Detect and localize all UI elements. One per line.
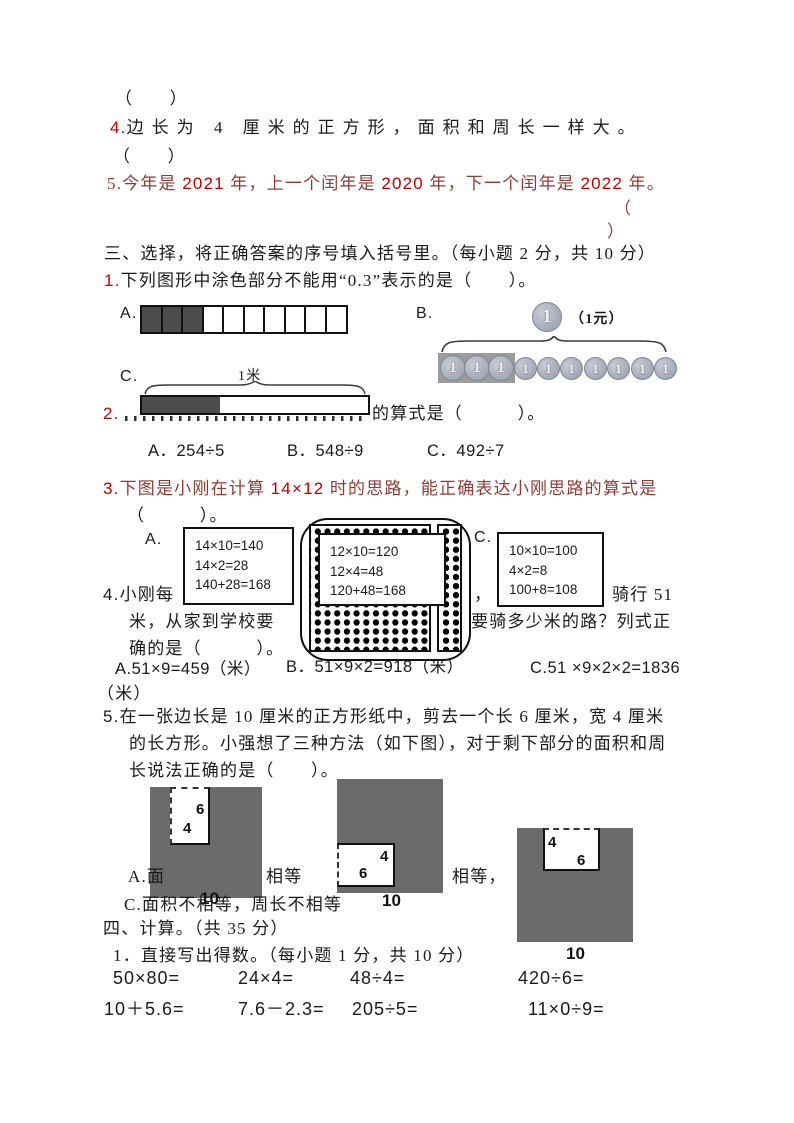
judge-q5-part: 年。 (623, 174, 665, 193)
q5-option-c-line: C.面积不相等，周长不相等 (124, 894, 342, 915)
equation-line: 12×4=48 (330, 562, 444, 582)
one-yuan-coin-large: 1 (532, 302, 562, 332)
q1-option-c-label: C. (120, 366, 138, 387)
one-yuan-coin: 1 (440, 355, 466, 381)
judge-q5-part: 年，上一个闰年是 (225, 174, 382, 193)
q3-expression: 14×12 (271, 479, 325, 498)
q4-line2-left: 米，从家到学校要 (129, 611, 275, 632)
meter-bar-shaded (142, 397, 220, 413)
worksheet-page: （ ） 4.边长为 4 厘米的正方形，面积和周长一样大。 （ ） 5.今年是 2… (0, 0, 794, 1123)
calc-item: 10＋5.6= (104, 999, 185, 1020)
q5-line1: 5.在一张边长是 10 厘米的正方形纸中，剪去一个长 6 厘米，宽 4 厘米 (103, 706, 664, 727)
calc-item: 7.6－2.3= (238, 999, 325, 1020)
year-number: 2021 (182, 174, 225, 193)
question-number: 1. (104, 271, 121, 290)
q5-option-fragment: 相等 (266, 866, 302, 887)
q3-option-a-label: A. (145, 529, 163, 550)
one-yuan-coin: 1 (488, 355, 514, 381)
question-number: 2. (103, 404, 120, 423)
calc-item: 420÷6= (518, 968, 584, 989)
calc-item: 24×4= (238, 968, 294, 989)
one-yuan-coin: 1 (464, 355, 490, 381)
q2-visible-text: 的算式是（ ）。 (372, 403, 546, 424)
bar-caption: 1米 (238, 366, 261, 387)
judge-q5-part: 5.今年是 (107, 174, 182, 193)
question-number: 3. (103, 479, 120, 498)
calc-item: 11×0÷9= (528, 999, 605, 1020)
section4-sub-heading: 1．直接写出得数。（每小题 1 分，共 10 分） (113, 945, 475, 966)
question-number: 4. (110, 118, 127, 137)
fraction-grid (140, 305, 348, 334)
q3-text: 下图是小刚在计算 (120, 479, 271, 498)
answer-paren-open: （ (614, 198, 632, 219)
year-number: 2020 (381, 174, 424, 193)
answer-blank: （ ） (113, 146, 186, 167)
q5-option-a-fragment: A.面 (128, 866, 165, 887)
q2-option-a: A．254÷5 (148, 441, 225, 462)
dim-label-6: 6 (196, 801, 204, 818)
coin-digit: 1 (639, 361, 646, 377)
equation-line: 100+8=108 (509, 580, 602, 600)
judge-q4-text: 边长为 4 厘米的正方形，面积和周长一样大。 (127, 118, 643, 137)
q3-stem: 3.下图是小刚在计算 14×12 时的思路，能正确表达小刚思路的算式是 (103, 478, 657, 499)
obscured-text-remnant (125, 416, 368, 421)
one-yuan-coin: 1 (560, 357, 583, 380)
equation-line: 10×10=100 (509, 541, 602, 561)
coin-digit: 1 (542, 306, 552, 328)
q2-number: 2. (103, 403, 120, 424)
q3-answer-blank: （ ）。 (127, 505, 228, 526)
section3-heading: 三、选择，将正确答案的序号填入括号里。（每小题 2 分，共 10 分） (104, 243, 656, 264)
calc-item: 50×80= (113, 968, 180, 989)
equation-line: 14×10=140 (195, 536, 292, 556)
judge-q5-line: 5.今年是 2021 年，上一个闰年是 2020 年，下一个闰年是 2022 年… (107, 173, 665, 194)
one-yuan-coin: 1 (607, 357, 630, 380)
dim-label-6: 6 (359, 865, 367, 882)
q5-text: 在一张边长是 10 厘米的正方形纸中，剪去一个长 6 厘米，宽 4 厘米 (120, 707, 665, 726)
answer-paren-close: ） (607, 221, 625, 242)
section4-heading: 四、计算。（共 35 分） (103, 918, 289, 939)
q4-fragment: 小刚每 (120, 585, 175, 604)
q1-text: 下列图形中涂色部分不能用“0.3”表示的是（ ）。 (121, 271, 537, 290)
q4-line1-mid: ， (474, 584, 492, 605)
coin-digit: 1 (449, 360, 457, 377)
q2-option-c: C．492÷7 (427, 441, 505, 462)
question-number: 4. (103, 585, 120, 604)
q4-option-a: A.51×9=459（米） (115, 659, 261, 680)
q3-option-c-label: C. (474, 527, 492, 548)
coin-digit: 1 (545, 361, 552, 377)
coin-digit: 1 (662, 361, 669, 377)
q3-option-c-box: 10×10=100 4×2=8 100+8=108 (497, 532, 604, 607)
q4-option-c-unit: （米） (97, 683, 152, 704)
equation-line: 140+28=168 (195, 575, 292, 595)
brace-icon (440, 336, 668, 353)
one-yuan-coin: 1 (654, 357, 677, 380)
q5-line2: 的长方形。小强想了三种方法（如下图），对于剩下部分的面积和周 (129, 733, 667, 754)
q1-option-a-label: A. (120, 303, 138, 324)
one-yuan-coin: 1 (537, 357, 560, 380)
dim-label-4: 4 (548, 834, 556, 851)
q2-option-b: B．548÷9 (287, 441, 364, 462)
one-yuan-coin: 1 (584, 357, 607, 380)
answer-blank: （ ） (115, 88, 188, 109)
meter-bar-figure (140, 395, 370, 415)
q4-option-c: C.51 ×9×2×2=1836 (530, 658, 680, 679)
q3-option-b-box: 12×10=120 12×4=48 120+48=168 (318, 533, 446, 606)
q5-option-fragment: 相等， (452, 866, 507, 887)
equation-line: 120+48=168 (330, 581, 444, 601)
one-yuan-coin: 1 (631, 357, 654, 380)
coin-digit: 1 (497, 360, 505, 377)
q4-line1-left: 4.小刚每 (103, 584, 174, 605)
q4-line3: 确的是（ ）。 (129, 638, 284, 659)
q3-option-a-box: 14×10=140 14×2=28 140+28=168 (183, 527, 294, 605)
coin-digit: 1 (568, 361, 575, 377)
question-number: 5. (103, 707, 120, 726)
one-yuan-coin: 1 (514, 357, 537, 380)
calc-item: 48÷4= (350, 968, 405, 989)
grid-cell (325, 305, 348, 334)
judge-q5-part: 年，下一个闰年是 (424, 174, 581, 193)
dim-label-6: 6 (577, 852, 585, 869)
side-label-10: 10 (566, 944, 585, 964)
side-label-10: 10 (382, 891, 401, 911)
equation-line: 4×2=8 (509, 561, 602, 581)
dim-label-4: 4 (183, 820, 191, 837)
year-number: 2022 (580, 174, 623, 193)
coin-digit: 1 (615, 361, 622, 377)
coin-digit: 1 (473, 360, 481, 377)
coin-caption: （1元） (570, 309, 624, 330)
equation-line: 12×10=120 (330, 542, 444, 562)
q1-stem: 1.下列图形中涂色部分不能用“0.3”表示的是（ ）。 (104, 270, 537, 291)
coin-digit: 1 (522, 361, 529, 377)
calc-item: 205÷5= (352, 999, 418, 1020)
q3-text: 时的思路，能正确表达小刚思路的算式是 (324, 479, 657, 498)
coin-digit: 1 (592, 361, 599, 377)
equation-line: 14×2=28 (195, 556, 292, 576)
dim-label-4: 4 (380, 848, 388, 865)
judge-q4-line: 4.边长为 4 厘米的正方形，面积和周长一样大。 (110, 117, 643, 138)
q4-line2-right: 要骑多少米的路？列式正 (471, 611, 671, 632)
q1-option-b-label: B. (416, 303, 434, 324)
q5-line3: 长说法正确的是（ ）。 (129, 760, 339, 781)
q4-line1-right: 骑行 51 (612, 584, 673, 605)
